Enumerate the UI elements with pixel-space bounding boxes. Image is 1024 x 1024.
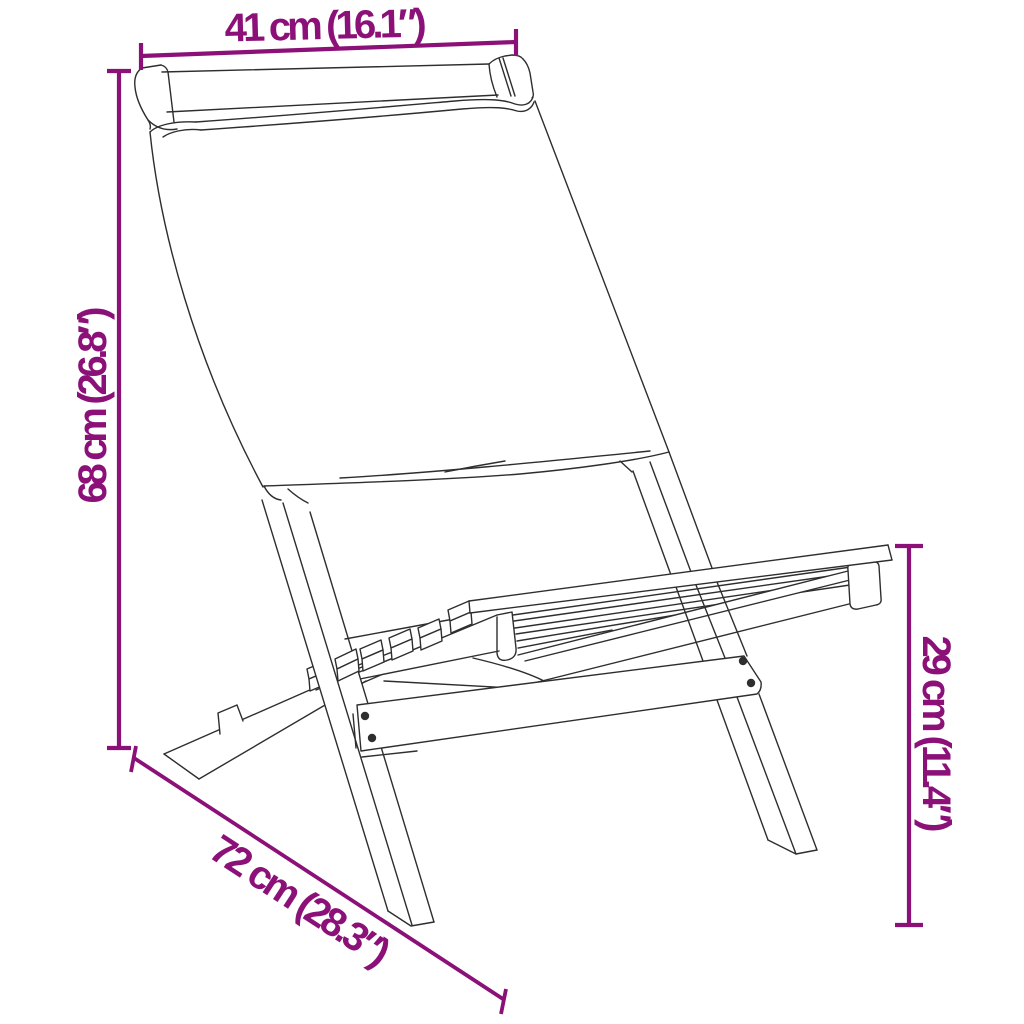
svg-text:29 cm (11.4″): 29 cm (11.4″) (914, 636, 958, 833)
svg-text:68 cm (26.8″): 68 cm (26.8″) (71, 307, 115, 504)
svg-text:41 cm (16.1″): 41 cm (16.1″) (224, 1, 427, 50)
